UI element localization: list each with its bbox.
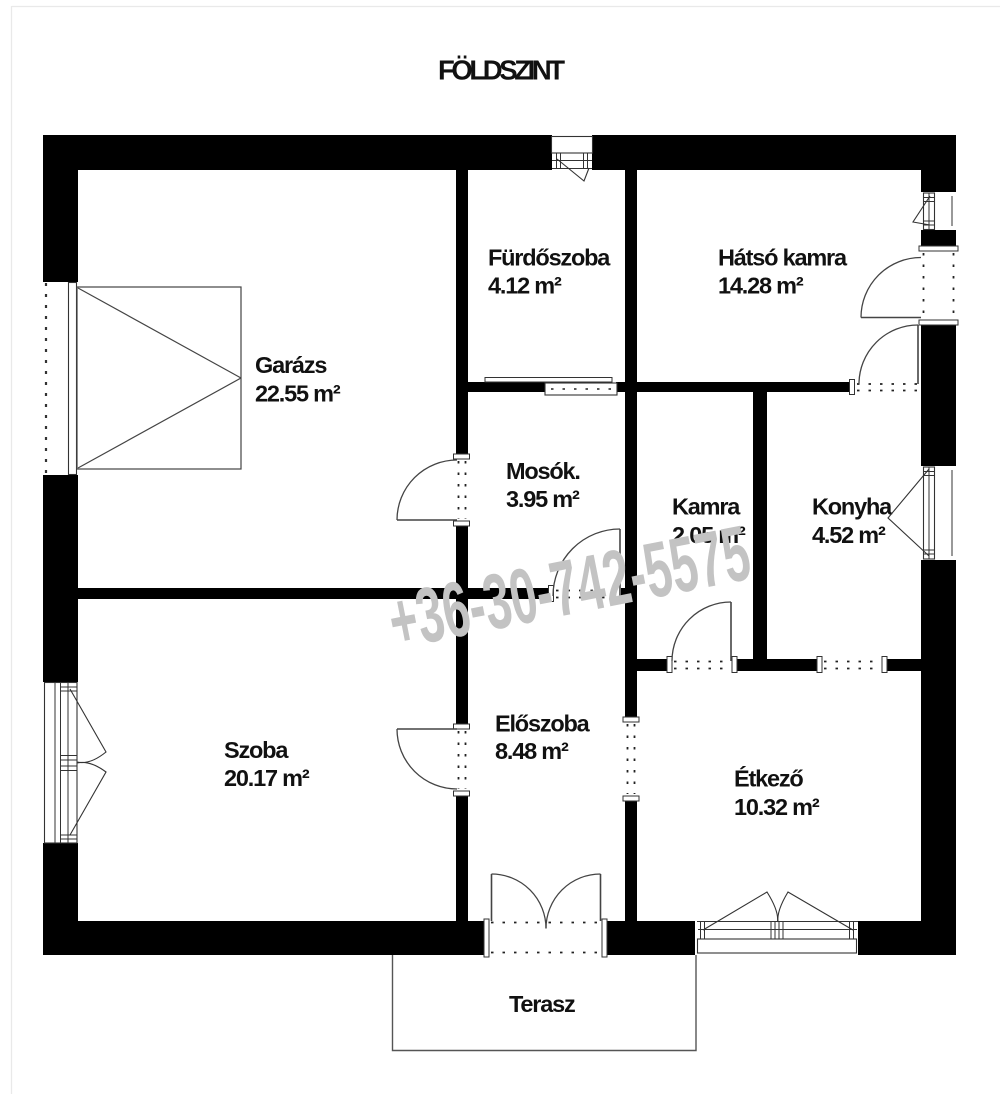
svg-text:FÖLDSZINT: FÖLDSZINT [438,55,565,86]
svg-text:Mosók.: Mosók. [506,458,580,484]
svg-text:Konyha: Konyha [812,494,893,520]
svg-text:Terasz: Terasz [509,991,575,1017]
svg-text:10.32 m²: 10.32 m² [734,794,820,820]
svg-text:4.52 m²: 4.52 m² [812,522,886,548]
svg-text:Fürdőszoba: Fürdőszoba [488,245,611,271]
svg-text:Szoba: Szoba [224,737,289,763]
svg-text:Előszoba: Előszoba [495,711,591,737]
svg-text:22.55 m²: 22.55 m² [255,381,341,407]
svg-text:Garázs: Garázs [255,352,327,378]
svg-text:Hátsó kamra: Hátsó kamra [718,245,848,271]
svg-text:Étkező: Étkező [734,765,803,792]
svg-text:14.28 m²: 14.28 m² [718,273,804,299]
svg-text:4.12 m²: 4.12 m² [488,273,562,299]
svg-text:20.17 m²: 20.17 m² [224,765,310,791]
svg-text:3.95 m²: 3.95 m² [506,486,580,512]
svg-text:8.48 m²: 8.48 m² [495,738,569,764]
